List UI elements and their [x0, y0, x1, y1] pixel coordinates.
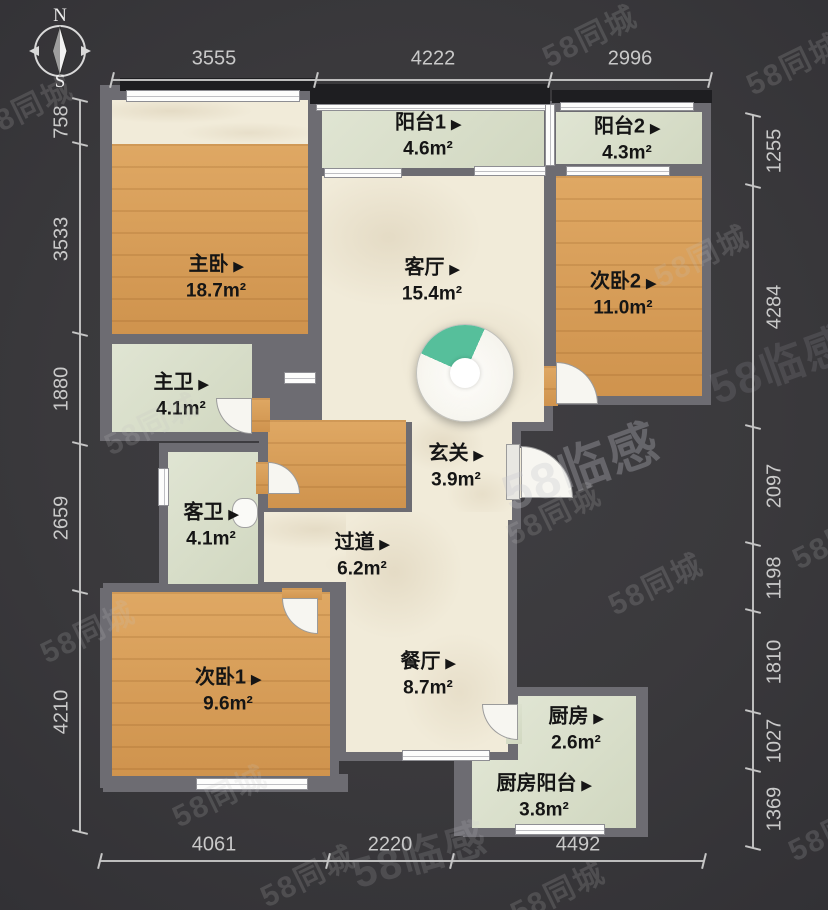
- compass-north-label: N: [53, 5, 67, 26]
- watermark: 58同城: [95, 380, 205, 464]
- watermark-brand: 58临感: [344, 804, 494, 901]
- watermark: 58同城: [779, 786, 828, 870]
- watermark: 58同城: [645, 212, 755, 296]
- watermark: 58同城: [497, 470, 607, 554]
- compass-west-pointer-icon: [29, 46, 39, 56]
- watermark: 58同城: [251, 832, 361, 910]
- watermark: 58同城: [783, 494, 828, 578]
- watermark: 58同城: [501, 848, 611, 910]
- floorplan-canvas: 主卧▶18.7m²阳台1▶4.6m²阳台2▶4.3m²客厅▶15.4m²次卧2▶…: [0, 0, 828, 910]
- watermark: 58同城: [599, 540, 709, 624]
- watermark-brand: 58临感: [491, 402, 669, 526]
- compass-east-pointer-icon: [81, 46, 91, 56]
- compass-needle-shade: [53, 27, 60, 75]
- watermark: 58同城: [163, 752, 273, 836]
- watermarks-layer: 58同城58同城58同城58同城58同城58同城58同城58同城58同城58同城…: [0, 0, 828, 910]
- compass-south-label: S: [55, 71, 66, 92]
- watermark: 58同城: [737, 20, 828, 104]
- watermark: 58同城: [533, 0, 643, 76]
- watermark: 58同城: [31, 588, 141, 672]
- watermark-brand: 58临感: [699, 307, 828, 417]
- compass: N S: [24, 4, 96, 92]
